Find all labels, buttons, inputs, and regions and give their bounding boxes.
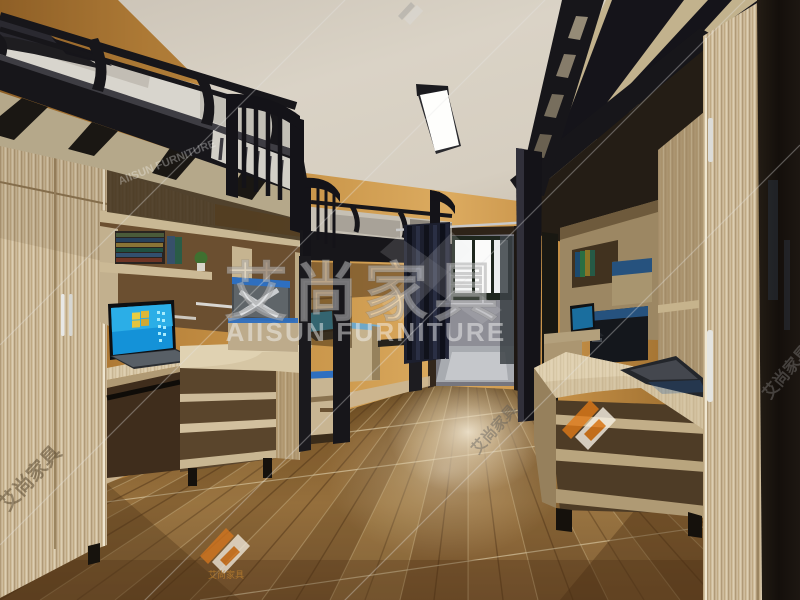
svg-text:AIISUN FURNITURE: AIISUN FURNITURE: [226, 317, 507, 347]
svg-text:艾尚家具: 艾尚家具: [208, 569, 244, 580]
